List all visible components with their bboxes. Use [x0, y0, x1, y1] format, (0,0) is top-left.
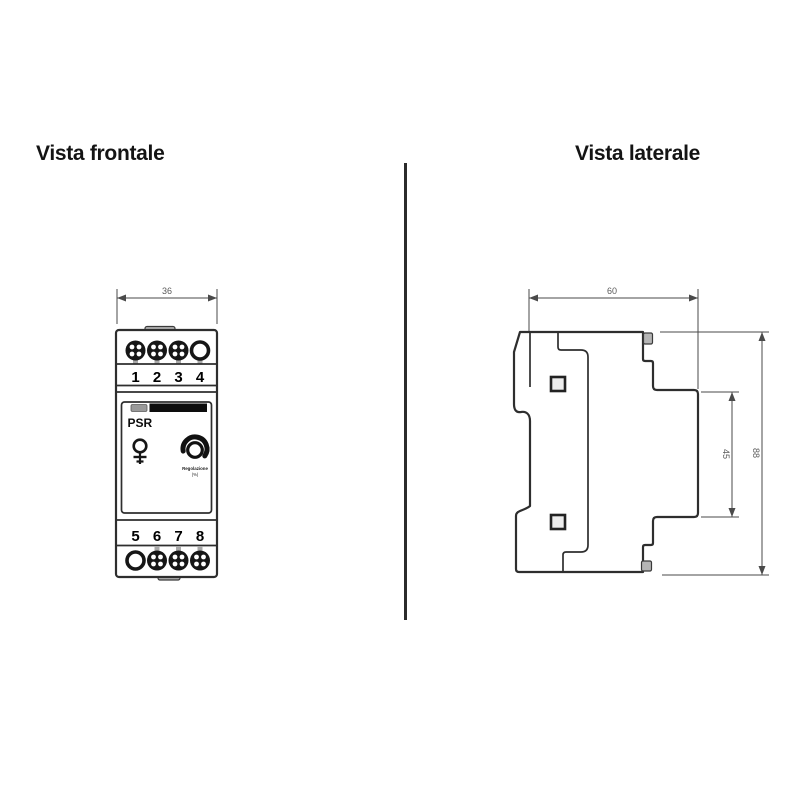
knob-unit-label: (%) [192, 472, 199, 477]
screw-terminal-6 [147, 551, 167, 571]
screw-terminal-1 [126, 341, 146, 361]
front-view-drawing: 36 1 2 3 4 [100, 280, 240, 600]
knob-label: Regolazione [182, 466, 208, 471]
screw-terminal-2 [147, 341, 167, 361]
model-label: PSR [128, 416, 153, 430]
open-terminal-5 [127, 552, 144, 569]
screw-terminal-7 [169, 551, 189, 571]
label-black-bar [150, 404, 208, 413]
front-view-title: Vista frontale [36, 142, 164, 166]
terminal-number: 1 [131, 369, 139, 386]
side-seal-tab-bottom [642, 561, 652, 571]
screw-terminal-8 [190, 551, 210, 571]
terminal-number: 4 [196, 369, 205, 386]
terminal-number: 7 [174, 528, 182, 545]
side-square-hole-top [551, 377, 565, 391]
side-square-hole-bottom [551, 515, 565, 529]
open-terminal-4 [192, 342, 209, 359]
terminal-number: 2 [153, 369, 161, 386]
knob-dial[interactable] [188, 443, 203, 458]
side-dim-depth-value: 60 [607, 286, 617, 296]
terminal-number: 6 [153, 528, 161, 545]
terminal-number: 5 [131, 528, 139, 545]
brand-logo-mark [131, 405, 147, 412]
side-dim-front-height-value: 45 [721, 449, 731, 459]
side-view-drawing: 60 45 88 [490, 280, 780, 600]
terminal-number: 8 [196, 528, 204, 545]
device-body-side-profile [514, 332, 698, 572]
front-dim-width-value: 36 [162, 286, 172, 296]
side-seal-tab-top [644, 333, 653, 344]
side-view-title: Vista laterale [575, 142, 700, 166]
side-dim-total-height-value: 88 [751, 448, 761, 458]
screw-terminal-3 [169, 341, 189, 361]
vertical-divider [404, 163, 407, 620]
terminal-number: 3 [174, 369, 182, 386]
